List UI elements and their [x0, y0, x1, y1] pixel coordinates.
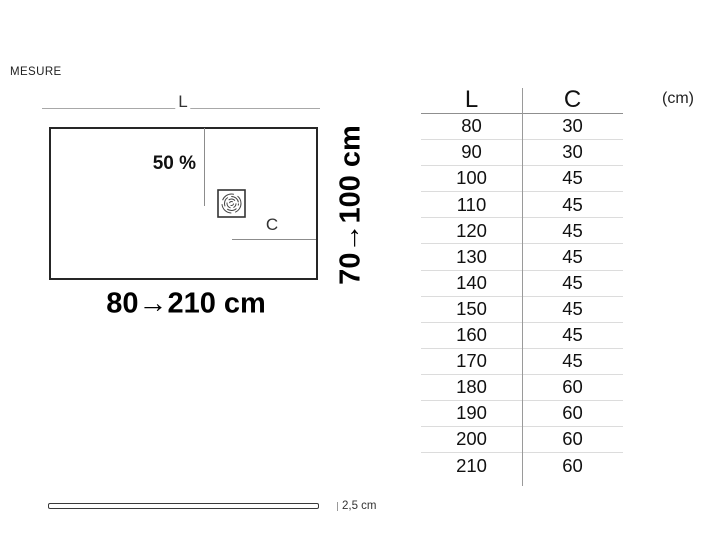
cell-l: 90 [421, 143, 522, 162]
thickness-label: 2,5 cm [342, 500, 377, 512]
drain-grate-icon [217, 189, 246, 218]
cell-l: 120 [421, 222, 522, 241]
cell-c: 45 [522, 352, 623, 371]
cell-c: 45 [522, 326, 623, 345]
cell-c: 45 [522, 274, 623, 293]
cell-c: 45 [522, 300, 623, 319]
column-header-c: C [522, 88, 623, 112]
slope-divider-line [204, 128, 205, 206]
length-range-label: 80→210 cm [106, 288, 266, 321]
cell-l: 180 [421, 378, 522, 397]
tray-side-profile [48, 503, 319, 509]
cell-c: 45 [522, 248, 623, 267]
table-unit-label: (cm) [662, 90, 694, 108]
length-dimension-label: L [175, 93, 190, 110]
thickness-tick-mark [337, 502, 338, 511]
cell-c: 45 [522, 222, 623, 241]
cell-l: 100 [421, 169, 522, 188]
size-table: L C 803090301004511045120451304514045150… [421, 86, 623, 479]
cell-c: 60 [522, 404, 623, 423]
cell-l: 190 [421, 404, 522, 423]
cell-c: 30 [522, 143, 623, 162]
cell-c: 45 [522, 169, 623, 188]
cell-l: 80 [421, 117, 522, 136]
cell-l: 150 [421, 300, 522, 319]
cell-l: 140 [421, 274, 522, 293]
cell-l: 210 [421, 457, 522, 476]
cell-c: 45 [522, 196, 623, 215]
cell-l: 130 [421, 248, 522, 267]
page-caption: MESURE [10, 66, 62, 78]
drain-offset-line [232, 239, 316, 240]
cell-c: 60 [522, 457, 623, 476]
drain-offset-label: C [260, 215, 284, 235]
cell-l: 200 [421, 430, 522, 449]
table-column-divider [522, 88, 523, 486]
thickness-annotation: 2,5 cm [337, 500, 377, 512]
cell-l: 110 [421, 196, 522, 215]
cell-c: 60 [522, 430, 623, 449]
slope-percin-label: 50 % [101, 153, 196, 175]
cell-l: 170 [421, 352, 522, 371]
cell-c: 60 [522, 378, 623, 397]
cell-c: 30 [522, 117, 623, 136]
width-range-label: 70→100 cm [335, 125, 368, 285]
cell-l: 160 [421, 326, 522, 345]
column-header-l: L [421, 88, 522, 112]
tray-outline: 50 % C [49, 127, 318, 280]
